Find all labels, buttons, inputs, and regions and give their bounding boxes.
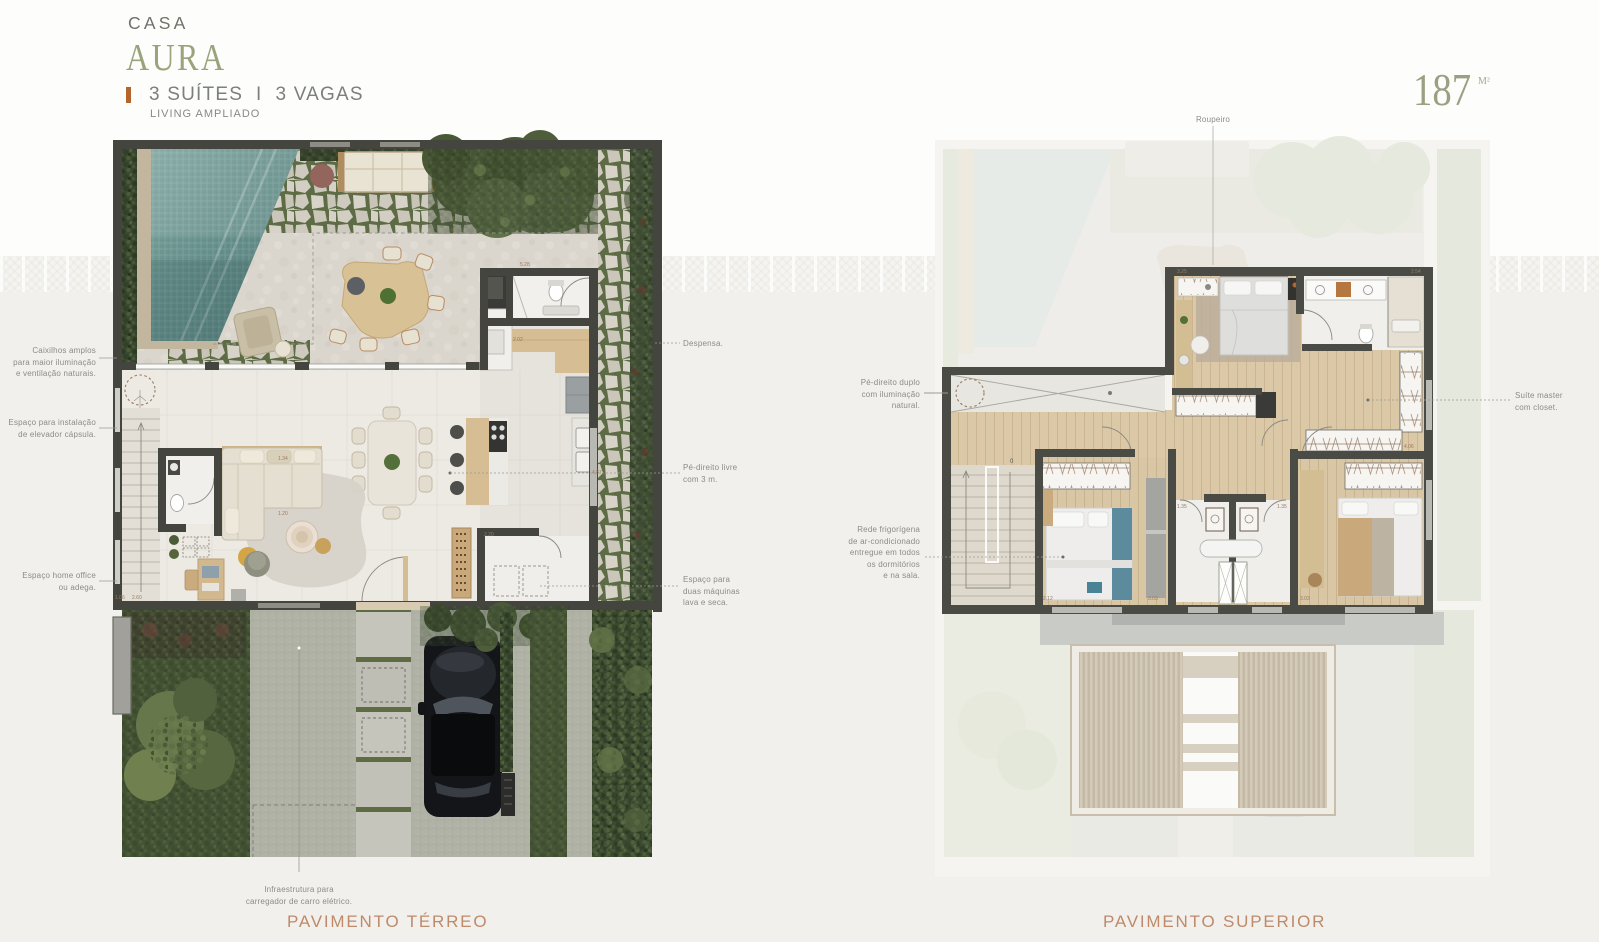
svg-text:1.06: 1.06	[115, 595, 125, 601]
svg-text:1.20: 1.20	[278, 511, 288, 517]
svg-text:3.03: 3.03	[1300, 596, 1310, 602]
svg-text:4.06: 4.06	[1404, 444, 1414, 450]
svg-text:2.60: 2.60	[132, 595, 142, 601]
svg-text:3.25: 3.25	[1177, 269, 1187, 275]
svg-text:4.87: 4.87	[592, 470, 602, 476]
svg-text:5.28: 5.28	[520, 262, 530, 268]
svg-text:2.02: 2.02	[513, 337, 523, 343]
svg-text:1.35: 1.35	[1177, 504, 1187, 510]
svg-text:2.20: 2.20	[484, 532, 494, 538]
svg-text:1.35: 1.35	[1277, 504, 1287, 510]
svg-text:3.03: 3.03	[1148, 596, 1158, 602]
svg-text:1.34: 1.34	[278, 456, 288, 462]
svg-text:2.54: 2.54	[1411, 269, 1421, 275]
svg-text:2.12: 2.12	[1043, 596, 1053, 602]
